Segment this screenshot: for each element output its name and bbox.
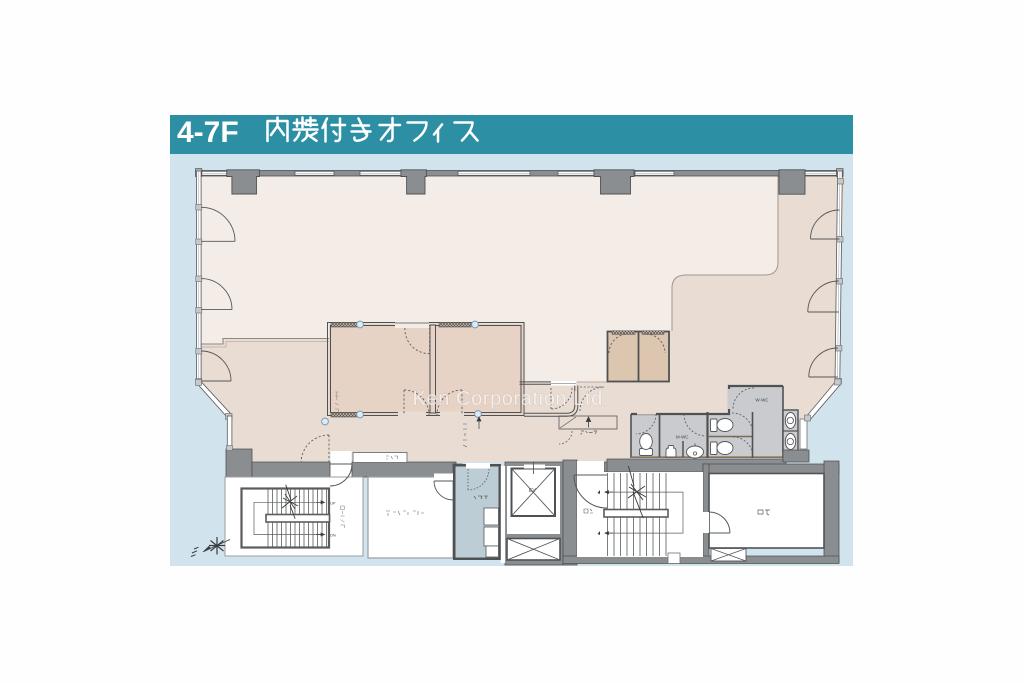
svg-text:W·WC: W·WC [756,398,769,403]
svg-text:M·WC: M·WC [676,435,688,440]
svg-text:DN: DN [330,533,336,538]
svg-text:Ken Corporation Ltd.: Ken Corporation Ltd. [413,388,610,410]
svg-text:4-7F: 4-7F [177,116,239,149]
svg-text:EV: EV [529,488,536,494]
svg-text:UP: UP [330,500,336,505]
